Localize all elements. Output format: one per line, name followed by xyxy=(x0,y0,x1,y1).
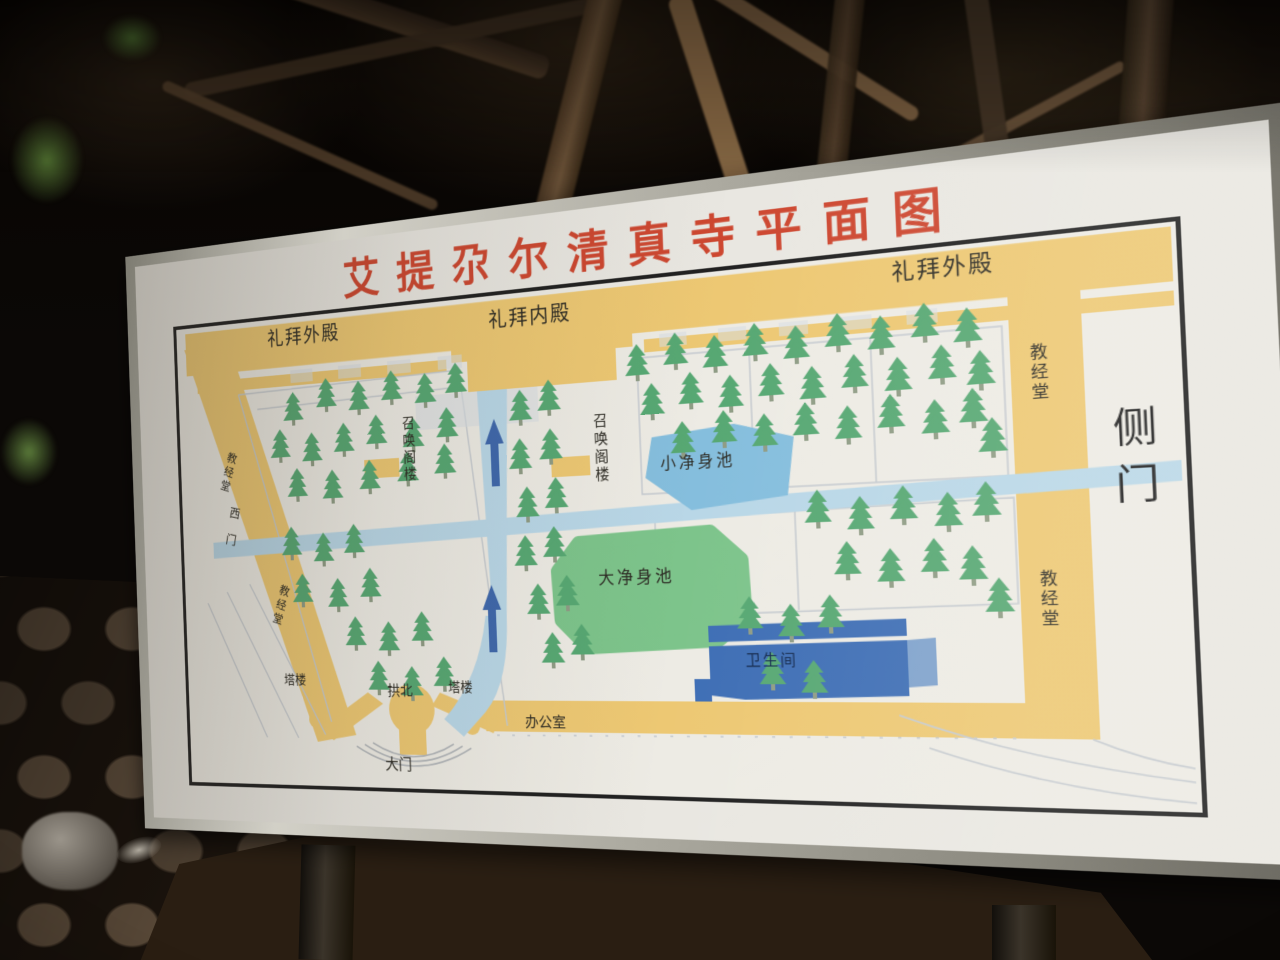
label-office: 办公室 xyxy=(525,714,566,730)
site-map-art xyxy=(176,221,1202,812)
label-small-ablution-pool: 小净身池 xyxy=(660,450,736,472)
leaf-cluster xyxy=(2,420,56,484)
label-main-gate: 大门 xyxy=(385,756,412,773)
label-gongbei: 拱北 xyxy=(387,683,413,698)
label-tower-left: 塔楼 xyxy=(284,674,307,688)
leaf-cluster xyxy=(104,16,160,60)
label-side-gate: 侧门 xyxy=(1105,404,1158,520)
label-large-ablution-pool: 大净身池 xyxy=(598,568,675,589)
night-photo-scene: 艾提尕尔清真寺平面图 xyxy=(0,0,1280,960)
label-restroom: 卫生间 xyxy=(745,652,798,669)
sign-post-right xyxy=(992,905,1056,960)
label-scripture-hall-right-top: 教经堂 xyxy=(1028,342,1050,403)
leaf-cluster xyxy=(12,118,82,202)
label-minaret-right: 召唤阁楼 xyxy=(592,413,610,485)
rock xyxy=(22,812,118,890)
label-tower-right: 塔楼 xyxy=(448,681,473,695)
label-scripture-hall-right-bottom: 教经堂 xyxy=(1038,569,1060,630)
sign-post-left xyxy=(299,844,356,960)
label-minaret-left: 召唤阁楼 xyxy=(401,415,417,484)
